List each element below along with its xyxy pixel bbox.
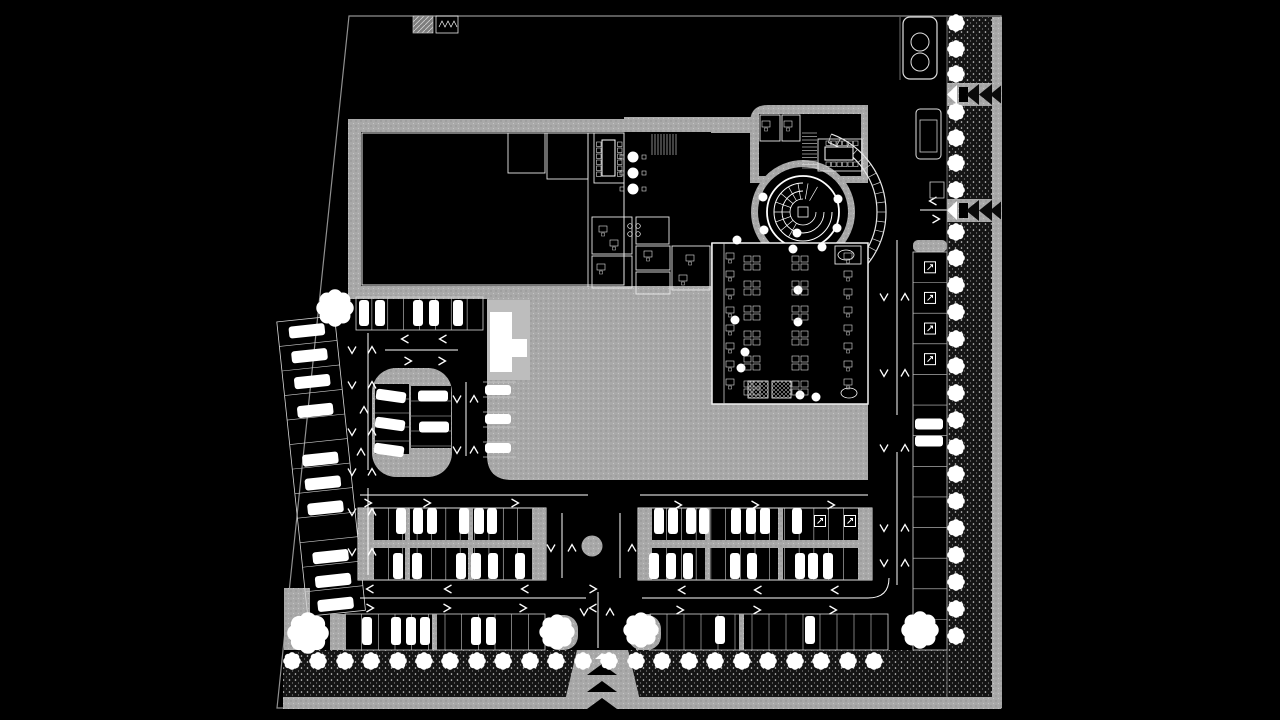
accessible-stall-icon [925, 354, 936, 365]
parked-car [686, 508, 696, 534]
parked-car [485, 443, 511, 453]
parked-car [654, 508, 664, 534]
tree [947, 600, 965, 618]
parked-car [471, 617, 481, 645]
tree-canopy-lobe [583, 654, 590, 661]
tree [947, 249, 965, 267]
parked-car [456, 553, 466, 579]
tree [947, 438, 965, 456]
tree-canopy-lobe [956, 521, 963, 528]
tree [653, 652, 671, 670]
tree-canopy-lobe [556, 654, 563, 661]
column [812, 393, 821, 402]
parked-car [487, 508, 497, 534]
gray-divider [778, 508, 783, 580]
parked-car [453, 300, 463, 326]
tree-canopy-lobe [956, 467, 963, 474]
parked-car [393, 553, 403, 579]
parked-car [823, 553, 833, 579]
buffet-table [772, 381, 791, 398]
parked-car [915, 419, 943, 430]
parked-car [396, 508, 406, 534]
tree [947, 65, 965, 83]
tree [287, 612, 329, 654]
tree [362, 652, 380, 670]
tree-canopy-lobe [956, 575, 963, 582]
parked-car [808, 553, 818, 579]
accessible-stall-icon [925, 262, 936, 273]
median-strip [358, 540, 546, 548]
tree [947, 627, 965, 645]
tree [947, 546, 965, 564]
tree [733, 652, 751, 670]
end-cap [358, 508, 374, 580]
tree [947, 223, 965, 241]
parked-car [413, 300, 423, 326]
parked-car [406, 617, 416, 645]
column [760, 226, 769, 235]
tree-canopy-lobe [956, 494, 963, 501]
tree-canopy-lobe [795, 654, 802, 661]
tree-canopy-lobe [715, 654, 722, 661]
parked-car [915, 436, 943, 447]
parked-car [471, 553, 481, 579]
parked-car [391, 617, 401, 645]
tree [947, 276, 965, 294]
tree-canopy-lobe [956, 332, 963, 339]
tree-canopy-lobe [956, 225, 963, 232]
accessible-stall-icon [925, 323, 936, 334]
tree-canopy-lobe [821, 654, 828, 661]
parked-car [362, 617, 372, 645]
utility-pad [413, 16, 433, 33]
tree-canopy-lobe [956, 67, 963, 74]
tree [947, 384, 965, 402]
column [789, 245, 798, 254]
roundabout-island [582, 536, 603, 557]
tree-canopy-lobe [662, 654, 669, 661]
tree-canopy-lobe [956, 413, 963, 420]
tree-canopy-lobe [371, 654, 378, 661]
building-connector-wall [624, 117, 764, 133]
tree-canopy-lobe [956, 105, 963, 112]
parked-car [486, 617, 496, 645]
tree-canopy-lobe [345, 654, 352, 661]
parked-car [795, 553, 805, 579]
tree [947, 303, 965, 321]
tree-canopy-lobe [641, 615, 655, 629]
tree-canopy-lobe [398, 654, 405, 661]
parked-car [419, 422, 449, 433]
parked-car [488, 553, 498, 579]
tree [680, 652, 698, 670]
parked-car [668, 508, 678, 534]
tree [574, 652, 592, 670]
tree [947, 129, 965, 147]
cad-site-plan-screenshot [0, 0, 1280, 720]
tree-canopy-lobe [530, 654, 537, 661]
parked-car [515, 553, 525, 579]
end-cap [330, 614, 346, 650]
tree-canopy-lobe [956, 131, 963, 138]
tree [627, 652, 645, 670]
tree [947, 330, 965, 348]
parked-car [715, 616, 725, 644]
tree-canopy-lobe [848, 654, 855, 661]
column [834, 195, 843, 204]
tree [283, 652, 301, 670]
end-cap [913, 240, 947, 252]
tree-canopy-lobe [956, 440, 963, 447]
tree [468, 652, 486, 670]
main-hall-interior [361, 132, 711, 286]
conference-table [602, 140, 615, 176]
parked-car [459, 508, 469, 534]
landscape-bottom-right [628, 650, 947, 697]
tree-canopy-lobe [956, 278, 963, 285]
end-cap [858, 508, 872, 580]
tree [947, 465, 965, 483]
tree-canopy-lobe [956, 16, 963, 23]
tree-canopy-lobe [503, 654, 510, 661]
tree [600, 652, 618, 670]
tree [947, 573, 965, 591]
tree [839, 652, 857, 670]
tree [901, 611, 938, 648]
tree-canopy-lobe [308, 616, 325, 633]
parked-car [699, 508, 709, 534]
parked-car [375, 300, 385, 326]
sidewalk-bottom [283, 697, 1001, 709]
column [731, 316, 740, 325]
parked-car [649, 553, 659, 579]
median-strip [638, 540, 872, 548]
tree-canopy-lobe [956, 359, 963, 366]
parked-car [427, 508, 437, 534]
tree [389, 652, 407, 670]
guard-booth [903, 17, 937, 79]
parked-car [683, 553, 693, 579]
parked-car [420, 617, 430, 645]
parked-car [746, 508, 756, 534]
tree-canopy-lobe [609, 654, 616, 661]
tree-canopy-lobe [557, 617, 571, 631]
tree-canopy-lobe [450, 654, 457, 661]
parked-car [485, 414, 511, 424]
parked-car [731, 508, 741, 534]
accessible-stall-icon [815, 516, 826, 527]
parked-car [418, 391, 448, 402]
tree-canopy-lobe [335, 293, 350, 308]
entry-gate [947, 83, 1001, 106]
tree-canopy-lobe [956, 548, 963, 555]
tree [786, 652, 804, 670]
tree [947, 154, 965, 172]
tree [947, 14, 965, 32]
end-cap [532, 508, 546, 580]
tree-canopy-lobe [318, 654, 325, 661]
tree-canopy-lobe [742, 654, 749, 661]
tree [336, 652, 354, 670]
tree-canopy-lobe [956, 602, 963, 609]
column [741, 348, 750, 357]
parked-car [666, 553, 676, 579]
tree-canopy-lobe [424, 654, 431, 661]
accessible-stall-icon [845, 516, 856, 527]
tree-canopy-lobe [956, 183, 963, 190]
parked-car [805, 616, 815, 644]
parked-car [485, 385, 511, 395]
tree [494, 652, 512, 670]
tree [947, 357, 965, 375]
tree [623, 612, 658, 647]
tree [547, 652, 565, 670]
tree [706, 652, 724, 670]
tree [947, 519, 965, 537]
round-table [628, 168, 639, 179]
parked-car [412, 553, 422, 579]
tree [309, 652, 327, 670]
tree [441, 652, 459, 670]
round-table [628, 184, 639, 195]
tree [415, 652, 433, 670]
tree [759, 652, 777, 670]
tree-canopy-lobe [874, 654, 881, 661]
parked-car [429, 300, 439, 326]
tree-canopy-lobe [956, 629, 963, 636]
tree-canopy-lobe [920, 615, 935, 630]
tree-canopy-lobe [956, 251, 963, 258]
tree-canopy-lobe [956, 156, 963, 163]
tree [947, 103, 965, 121]
tree [947, 492, 965, 510]
parked-car [760, 508, 770, 534]
tree-canopy-lobe [292, 654, 299, 661]
parked-car [747, 553, 757, 579]
tree-canopy-lobe [636, 654, 643, 661]
site-plan-drawing [0, 0, 1280, 720]
tree [947, 40, 965, 58]
parked-car [730, 553, 740, 579]
tree [947, 181, 965, 199]
parked-car [413, 508, 423, 534]
tree-canopy-lobe [956, 386, 963, 393]
gray-divider [432, 614, 437, 650]
entry-gate [947, 199, 1001, 222]
column [818, 243, 827, 252]
tree-canopy-lobe [956, 42, 963, 49]
parked-car [474, 508, 484, 534]
conference-table [825, 147, 853, 160]
tree [521, 652, 539, 670]
column [759, 193, 768, 202]
tree-canopy-lobe [956, 305, 963, 312]
column [733, 236, 742, 245]
tree [316, 289, 353, 326]
accessible-stall-icon [925, 292, 936, 303]
column [833, 224, 842, 233]
tree [539, 614, 574, 649]
parked-car [359, 300, 369, 326]
parked-car [792, 508, 802, 534]
tree [947, 411, 965, 429]
gray-divider [739, 614, 744, 650]
tree-canopy-lobe [689, 654, 696, 661]
tree-canopy-lobe [477, 654, 484, 661]
column [793, 229, 802, 238]
tree-canopy-lobe [768, 654, 775, 661]
round-table [628, 152, 639, 163]
tree [865, 652, 883, 670]
tree [812, 652, 830, 670]
